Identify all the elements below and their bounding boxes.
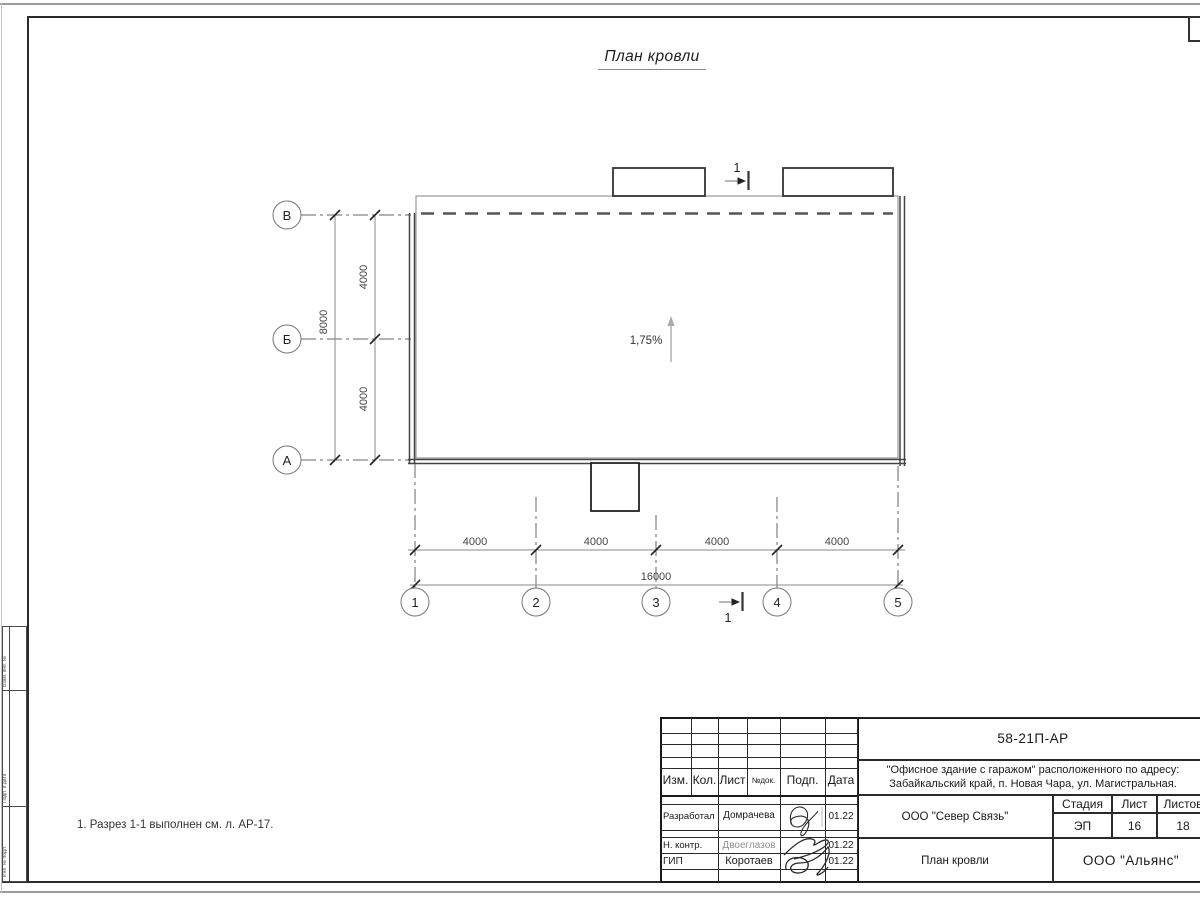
section-label: 1 [725,611,732,625]
title-block: Изм. Кол. Лист №док. Подп. Дата Разработ… [660,717,1200,883]
row-name-domracheva: Домрачева [718,810,780,821]
revision-grid [660,717,858,769]
col-header-izm: Изм. [660,773,691,787]
stage-header: Стадия [1062,797,1103,811]
dim-label: 4000 [825,536,849,548]
sheets-value: 18 [1176,819,1189,833]
roof-outline [408,196,906,466]
row-role-nkontr: Н. контр. [663,840,702,851]
sheet-header-cell: Лист [1112,795,1157,813]
company-name: ООО "Альянс" [1083,853,1179,868]
col-header-list: Лист [718,773,747,787]
doc-number-cell: 58-21П-АР [857,717,1200,760]
sheet-value: 16 [1128,819,1141,833]
sheet-header: Лист [1121,797,1147,811]
axis-label: 1 [411,595,418,610]
section-label: 1 [734,161,741,175]
slope-label: 1,75% [630,335,663,347]
stage-value-cell: ЭП [1053,813,1112,838]
col-axis-bubbles: 1 2 3 4 5 [401,588,912,616]
sheets-value-cell: 18 [1157,813,1200,838]
drawing-name-cell: План кровли [857,838,1053,883]
grid-line [660,733,858,734]
sheets-header-cell: Листов [1157,795,1200,813]
row-role-gip: ГИП [663,856,683,867]
dim-label: 4000 [358,265,370,289]
stage-header-cell: Стадия [1053,795,1112,813]
drawing-name: План кровли [921,855,989,867]
object-line2: Забайкальский край, п. Новая Чара, ул. М… [887,778,1180,792]
row-name-dvoeglazov: Двоеглазов [718,840,780,851]
dim-label: 4000 [463,536,487,548]
axis-label: Б [283,332,292,347]
signature-razrabotal [790,807,818,836]
section-mark-bottom: 1 [719,592,743,625]
col-header-data: Дата [825,773,857,787]
row-role-razrabotal: Разработал [663,811,715,822]
roof-superstructures [613,168,893,196]
dim-label: 4000 [705,536,729,548]
doc-number: 58-21П-АР [997,731,1068,746]
axis-label: 4 [773,595,780,610]
col-header-podp: Подп. [780,773,825,787]
section-mark-top: 1 [725,161,749,190]
contractor-name: ООО "Север Связь" [902,811,1009,823]
stage-value: ЭП [1074,819,1091,833]
grid-line [660,757,858,758]
col-axis-lines [415,463,898,588]
dim-label: 4000 [584,536,608,548]
grid-line [660,744,858,745]
grid-line [660,768,858,769]
row-axis-bubbles: В Б А [273,201,301,474]
axis-label: 2 [532,595,539,610]
col-header-kol: Кол. [691,773,718,787]
sheet-value-cell: 16 [1112,813,1157,838]
signature-gip [786,847,829,875]
signature-nkontr [784,839,828,859]
axis-label: А [283,453,292,468]
slope-annotation: 1,75% [630,316,675,362]
drawing-sheet: { "page": { "title": "План кровли", "not… [0,0,1200,900]
left-dimensions: 4000 4000 8000 [318,210,380,465]
axis-label: 3 [652,595,659,610]
axis-label: 5 [894,595,901,610]
dim-label: 8000 [318,310,330,334]
signatures [778,797,856,883]
contractor-cell: ООО "Север Связь" [857,795,1053,838]
canopy-box [591,463,639,511]
object-name-cell: "Офисное здание с гаражом" расположенног… [857,760,1200,795]
company-cell: ООО "Альянс" [1053,838,1200,883]
axis-label: В [283,208,292,223]
col-header-ndok: №док. [747,776,780,785]
row-name-korotaev: Коротаев [718,855,780,867]
object-line1: "Офисное здание с гаражом" расположенног… [887,764,1180,778]
dim-label: 16000 [641,571,672,583]
dim-label: 4000 [358,387,370,411]
row-axis-lines [301,215,411,460]
sheets-header: Листов [1164,797,1200,811]
